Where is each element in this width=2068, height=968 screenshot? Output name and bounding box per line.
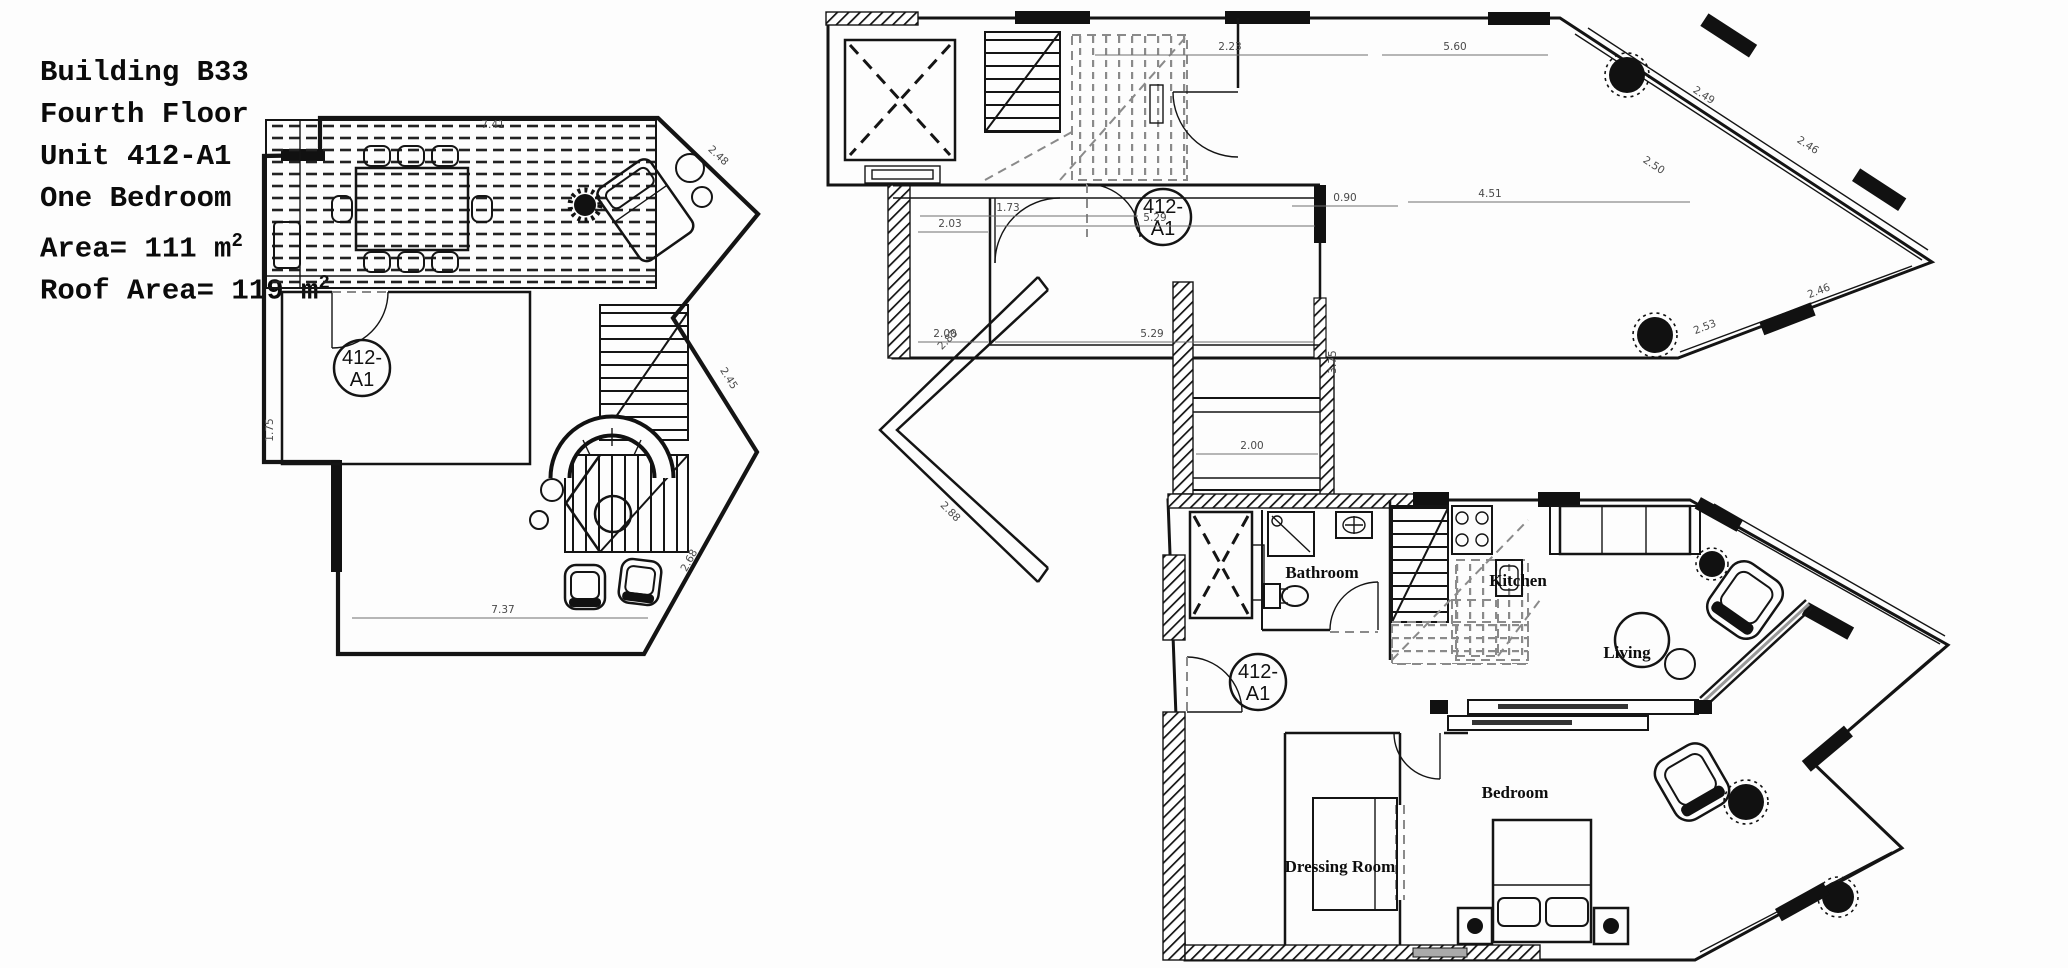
dim-label: 2.00 (933, 328, 956, 340)
window-slot (1413, 948, 1467, 957)
elevator-icon (845, 40, 955, 183)
dim-label: 7.37 (491, 604, 514, 616)
room-label-kitchen: Kitchen (1489, 571, 1547, 590)
dim-label: 2.00 (1240, 440, 1263, 452)
media-wall (1430, 700, 1712, 730)
dim-label: 1.73 (996, 202, 1019, 214)
elevator-icon (1190, 512, 1264, 618)
unit-badge-line1: 412- (1238, 661, 1278, 683)
lower-floor-plan: Bathroom Kitch (1163, 492, 1948, 960)
bed-icon (1493, 820, 1591, 942)
dim-label: 3.75 (1327, 350, 1339, 373)
wall-chunk (1314, 185, 1326, 243)
nightstand-icon (1594, 908, 1628, 944)
round-table-icon (530, 511, 548, 529)
dim-label: 0.90 (1333, 192, 1356, 204)
wall-chunk (1015, 11, 1090, 24)
dressing-room (1285, 733, 1404, 945)
floorplan-sheet: Building B33 Fourth Floor Unit 412-A1 On… (0, 0, 2068, 968)
dim-label: 2.50 (1641, 154, 1667, 177)
unit-badge-line2: A1 (1246, 683, 1270, 705)
sofa-icon (1550, 506, 1700, 554)
toilet-icon (1264, 584, 1308, 608)
unit-badge-line2: A1 (350, 369, 374, 391)
side-table-icon (676, 154, 704, 182)
door-arc-icon (1187, 657, 1242, 712)
armchair-icon (617, 558, 662, 607)
dim-label: 2.03 (938, 218, 961, 230)
dim-label: 2.53 (1692, 317, 1718, 337)
room-label-dressing-room: Dressing Room (1285, 857, 1396, 876)
dim-label: 2.46 (1795, 134, 1821, 157)
dim-label: 5.29 (1143, 212, 1166, 224)
core-bridge (1173, 282, 1334, 497)
dim-label: 5.29 (1140, 328, 1163, 340)
wall-chunk (1163, 555, 1185, 640)
wall-chunk (331, 460, 342, 572)
wardrobe-icon (1313, 798, 1397, 910)
dim-label: 4.51 (1478, 188, 1501, 200)
unit-badge: 412- A1 (334, 340, 390, 396)
wall-chunk (1168, 494, 1418, 508)
stair-icon (985, 32, 1187, 180)
unit-badge: 412- A1 (1230, 654, 1286, 710)
room-label-bathroom: Bathroom (1285, 563, 1358, 582)
coffee-table-icon (1665, 649, 1695, 679)
wall-chunk (1488, 12, 1550, 25)
room-label-bedroom: Bedroom (1482, 783, 1549, 802)
wall-chunk (1314, 298, 1326, 358)
sliding-door-icon (1700, 600, 1812, 706)
door-arc-icon (1330, 582, 1378, 632)
wall-chunk (1185, 945, 1540, 960)
planter-icon (1633, 313, 1677, 357)
wall-chunk (888, 185, 910, 358)
dim-label: 1.75 (264, 418, 276, 441)
planter-icon (1605, 53, 1649, 97)
stove-icon (1452, 506, 1492, 554)
dim-label: 2.45 (717, 365, 740, 391)
unit-badge-line1: 412- (342, 347, 382, 369)
roof-plan: 412- A1 (264, 118, 758, 654)
door-arc-icon (1087, 184, 1140, 237)
roof-room (282, 292, 530, 464)
wall-chunk (826, 12, 918, 25)
round-table-icon (541, 479, 563, 501)
armchair-icon (565, 565, 605, 609)
dim-label: 7.41 (481, 119, 504, 131)
armchair-icon (1649, 738, 1735, 827)
side-table-icon (692, 187, 712, 207)
nightstand-icon (1458, 908, 1492, 944)
dim-label: 5.60 (1443, 41, 1466, 53)
planter-icon (1724, 780, 1768, 824)
dim-label: 2.46 (1806, 281, 1832, 301)
upper-floor-plan: 412- A1 2.23 5.60 1.73 0.90 4.51 (826, 11, 1932, 497)
sink-icon (1336, 512, 1372, 538)
wall-chunk (1163, 712, 1185, 960)
plans-drawing: 412- A1 (0, 0, 2068, 968)
shower-icon (1268, 512, 1314, 556)
dim-label: 2.23 (1218, 41, 1241, 53)
dim-label: 2.88 (938, 499, 963, 524)
room-label-living: Living (1603, 643, 1651, 662)
